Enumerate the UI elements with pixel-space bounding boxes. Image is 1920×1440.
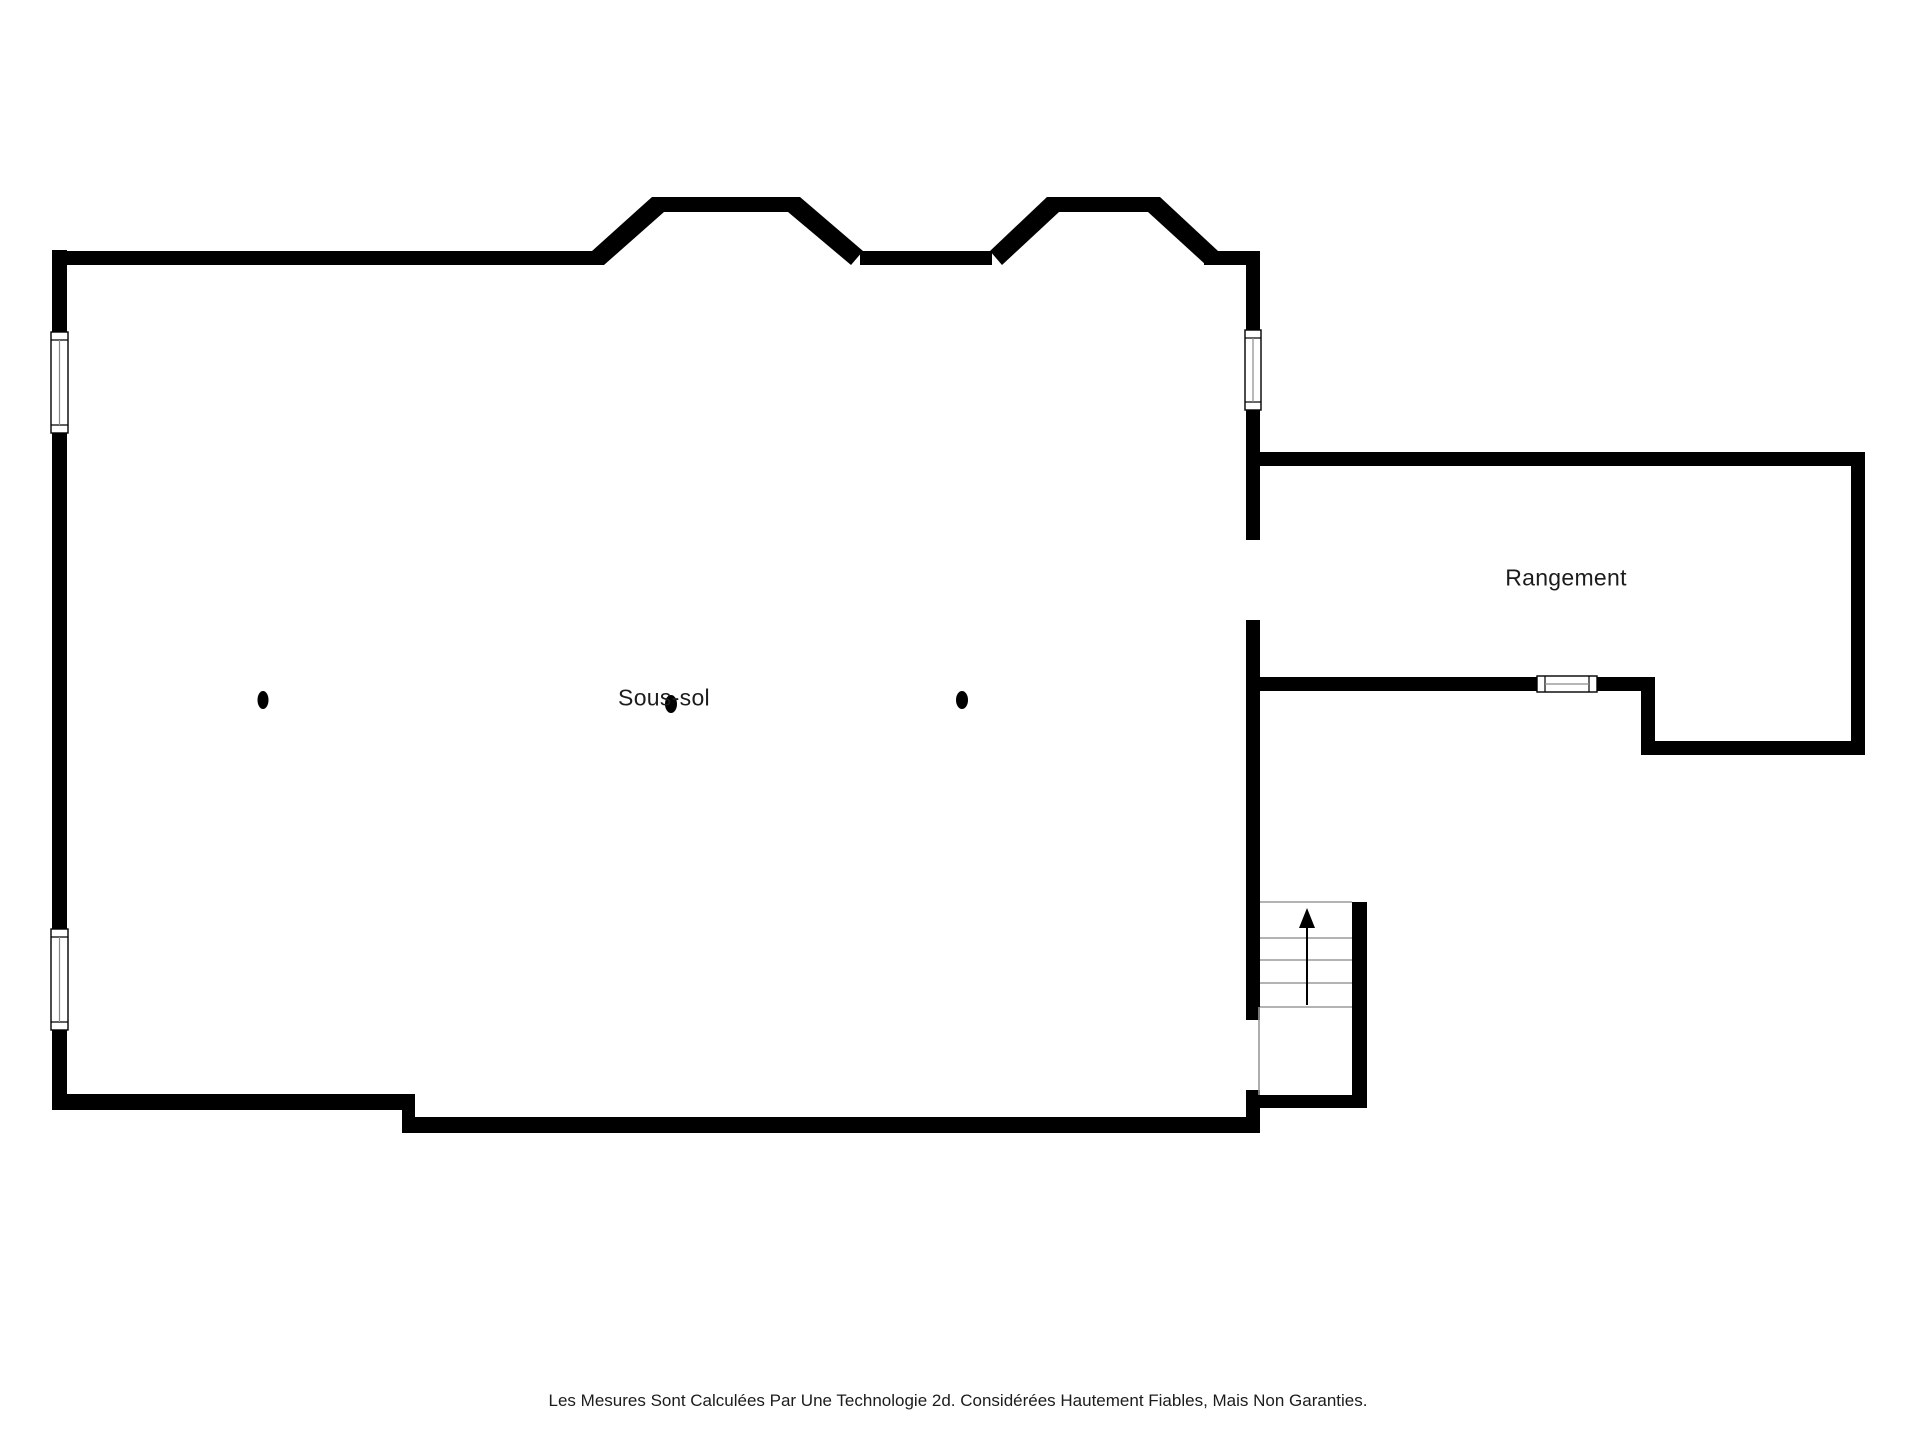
bay1-fall-wall <box>788 197 863 265</box>
rangement-right-wall <box>1851 452 1865 755</box>
floor-plan-drawing <box>0 0 1920 1440</box>
support-post-left <box>258 691 269 709</box>
rangement-top-wall <box>1246 452 1865 466</box>
right-wall-mid <box>1246 408 1260 540</box>
bay2-top-wall <box>1047 197 1160 212</box>
room-label-rangement: Rangement <box>1505 565 1627 592</box>
bay2-fall-wall <box>1148 197 1218 265</box>
top-wall-mid <box>860 251 992 265</box>
bay1-rise-wall <box>592 197 664 265</box>
right-wall-upper <box>1246 251 1260 332</box>
room-label-sous-sol: Sous-sol <box>618 685 710 712</box>
top-wall-west <box>52 251 604 265</box>
stair-bottom-wall <box>1260 1095 1367 1108</box>
bottom-wall-center <box>402 1117 1260 1133</box>
bay2-rise-wall <box>990 197 1059 265</box>
bottom-wall-step <box>402 1094 415 1124</box>
footer-disclaimer: Les Mesures Sont Calculées Par Une Techn… <box>549 1391 1368 1411</box>
bay1-top-wall <box>652 197 800 212</box>
bottom-wall-left <box>52 1094 415 1110</box>
support-post-right <box>956 691 968 709</box>
stair-right-wall <box>1352 902 1367 1107</box>
stair-up-arrow-head <box>1299 908 1315 928</box>
floor-plan-page: Sous-sol Rangement Les Mesures Sont Calc… <box>0 0 1920 1440</box>
rangement-bottom-lower <box>1641 741 1865 755</box>
